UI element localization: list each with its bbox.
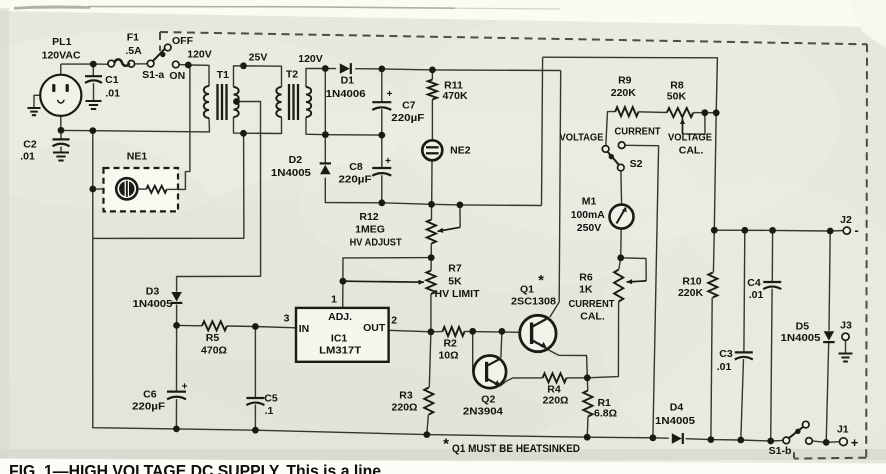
svg-text:220Ω: 220Ω [392, 402, 418, 414]
svg-text:470K: 470K [442, 90, 468, 102]
svg-text:1N4005: 1N4005 [133, 298, 173, 310]
svg-text:R7: R7 [448, 263, 462, 275]
svg-text:T1: T1 [217, 69, 229, 81]
svg-text:.01: .01 [20, 151, 35, 163]
svg-text:R3: R3 [399, 390, 413, 402]
svg-text:120V: 120V [298, 53, 323, 65]
svg-text:C1: C1 [105, 74, 119, 86]
svg-text:D1: D1 [341, 74, 355, 86]
svg-text:470Ω: 470Ω [201, 345, 227, 357]
svg-text:D3: D3 [146, 286, 160, 298]
svg-text:R10: R10 [682, 276, 701, 288]
svg-text:T2: T2 [286, 69, 298, 81]
svg-text:ADJ.: ADJ. [328, 311, 352, 323]
svg-text:OUT: OUT [363, 322, 386, 334]
svg-text:+: + [851, 435, 859, 450]
svg-text:IN: IN [299, 323, 310, 335]
svg-text:2SC1308: 2SC1308 [511, 296, 556, 308]
svg-text:M1: M1 [582, 196, 597, 208]
svg-text:HV ADJUST: HV ADJUST [350, 237, 403, 249]
svg-text:1N4005: 1N4005 [655, 415, 695, 427]
svg-text:R9: R9 [618, 75, 632, 87]
svg-text:25V: 25V [249, 52, 268, 64]
svg-text:.5A: .5A [125, 45, 142, 57]
svg-text:CAL.: CAL. [580, 311, 605, 323]
svg-text:R5: R5 [206, 332, 220, 344]
svg-text:D2: D2 [289, 154, 303, 166]
svg-text:S2: S2 [630, 158, 643, 170]
svg-text:VOLTAGE: VOLTAGE [668, 132, 712, 144]
svg-text:50K: 50K [667, 90, 687, 102]
svg-text:6.8Ω: 6.8Ω [594, 407, 617, 419]
svg-text:C4: C4 [747, 277, 761, 289]
svg-text:.01: .01 [749, 289, 764, 301]
svg-text:R12: R12 [359, 211, 378, 223]
svg-text:1K: 1K [579, 284, 593, 296]
svg-text:PL1: PL1 [52, 36, 71, 48]
svg-text:IC1: IC1 [331, 333, 348, 345]
svg-text:C8: C8 [349, 161, 363, 173]
svg-text:R2: R2 [443, 337, 457, 349]
svg-text:+: + [385, 156, 391, 167]
svg-text:S1-a: S1-a [142, 69, 164, 81]
svg-text:Q2: Q2 [481, 393, 495, 405]
svg-text:LM317T: LM317T [319, 345, 362, 357]
svg-text:R6: R6 [579, 272, 593, 284]
svg-text:250V: 250V [577, 222, 602, 234]
svg-text:CURRENT: CURRENT [569, 298, 616, 310]
svg-text:2N3904: 2N3904 [463, 406, 503, 418]
svg-text:.01: .01 [105, 87, 120, 99]
svg-text:HV LIMIT: HV LIMIT [435, 288, 481, 300]
svg-text:NE1: NE1 [127, 150, 148, 162]
svg-text:220K: 220K [678, 287, 704, 299]
svg-text:J3: J3 [840, 320, 852, 332]
svg-text:C7: C7 [402, 100, 416, 112]
svg-text:5K: 5K [448, 276, 462, 288]
svg-text:1: 1 [331, 294, 337, 306]
svg-text:C2: C2 [23, 139, 37, 151]
svg-text:120VAC: 120VAC [42, 50, 81, 62]
svg-text:100mA: 100mA [571, 209, 605, 221]
svg-text:D4: D4 [670, 402, 684, 414]
svg-text:VOLTAGE: VOLTAGE [560, 132, 604, 144]
svg-text:.1: .1 [265, 405, 274, 417]
svg-text:.01: .01 [717, 361, 732, 373]
svg-text:1N4005: 1N4005 [781, 332, 821, 344]
svg-text:*: * [538, 272, 544, 289]
svg-text:220µF: 220µF [132, 401, 166, 413]
svg-text:+: + [387, 89, 393, 100]
svg-text:1N4005: 1N4005 [271, 167, 311, 179]
svg-text:3: 3 [284, 313, 290, 325]
svg-text:220Ω: 220Ω [543, 395, 569, 407]
svg-text:10Ω: 10Ω [438, 350, 458, 362]
svg-text:220K: 220K [611, 87, 637, 99]
svg-text:J1: J1 [837, 424, 849, 436]
svg-text:220µF: 220µF [391, 112, 425, 124]
svg-text:CAL.: CAL. [679, 145, 704, 157]
svg-text:S1-b: S1-b [769, 445, 792, 457]
svg-text:C5: C5 [264, 393, 278, 405]
svg-text:1MEG: 1MEG [355, 224, 385, 236]
svg-text:Q1 MUST BE HEATSINKED: Q1 MUST BE HEATSINKED [452, 443, 580, 455]
svg-text:Q1: Q1 [520, 284, 534, 296]
svg-text:F1: F1 [127, 32, 139, 44]
svg-text:-: - [854, 223, 858, 238]
svg-text:J2: J2 [840, 214, 852, 226]
svg-text:C6: C6 [143, 389, 157, 401]
svg-text:CURRENT: CURRENT [615, 126, 662, 138]
svg-text:120V: 120V [187, 49, 212, 61]
svg-text:1N4006: 1N4006 [326, 88, 366, 100]
svg-text:220µF: 220µF [339, 174, 373, 186]
svg-text:C3: C3 [719, 348, 733, 360]
svg-text:2: 2 [391, 315, 397, 327]
svg-text:NE2: NE2 [450, 144, 471, 156]
svg-text:+: + [182, 382, 188, 393]
svg-text:ON: ON [169, 70, 185, 82]
svg-text:FIG. 1—HIGH VOLTAGE DC SUPPLY.: FIG. 1—HIGH VOLTAGE DC SUPPLY. This is a… [9, 462, 381, 474]
svg-text:OFF: OFF [172, 35, 194, 47]
svg-text:*: * [443, 436, 449, 453]
svg-text:D5: D5 [796, 320, 810, 332]
